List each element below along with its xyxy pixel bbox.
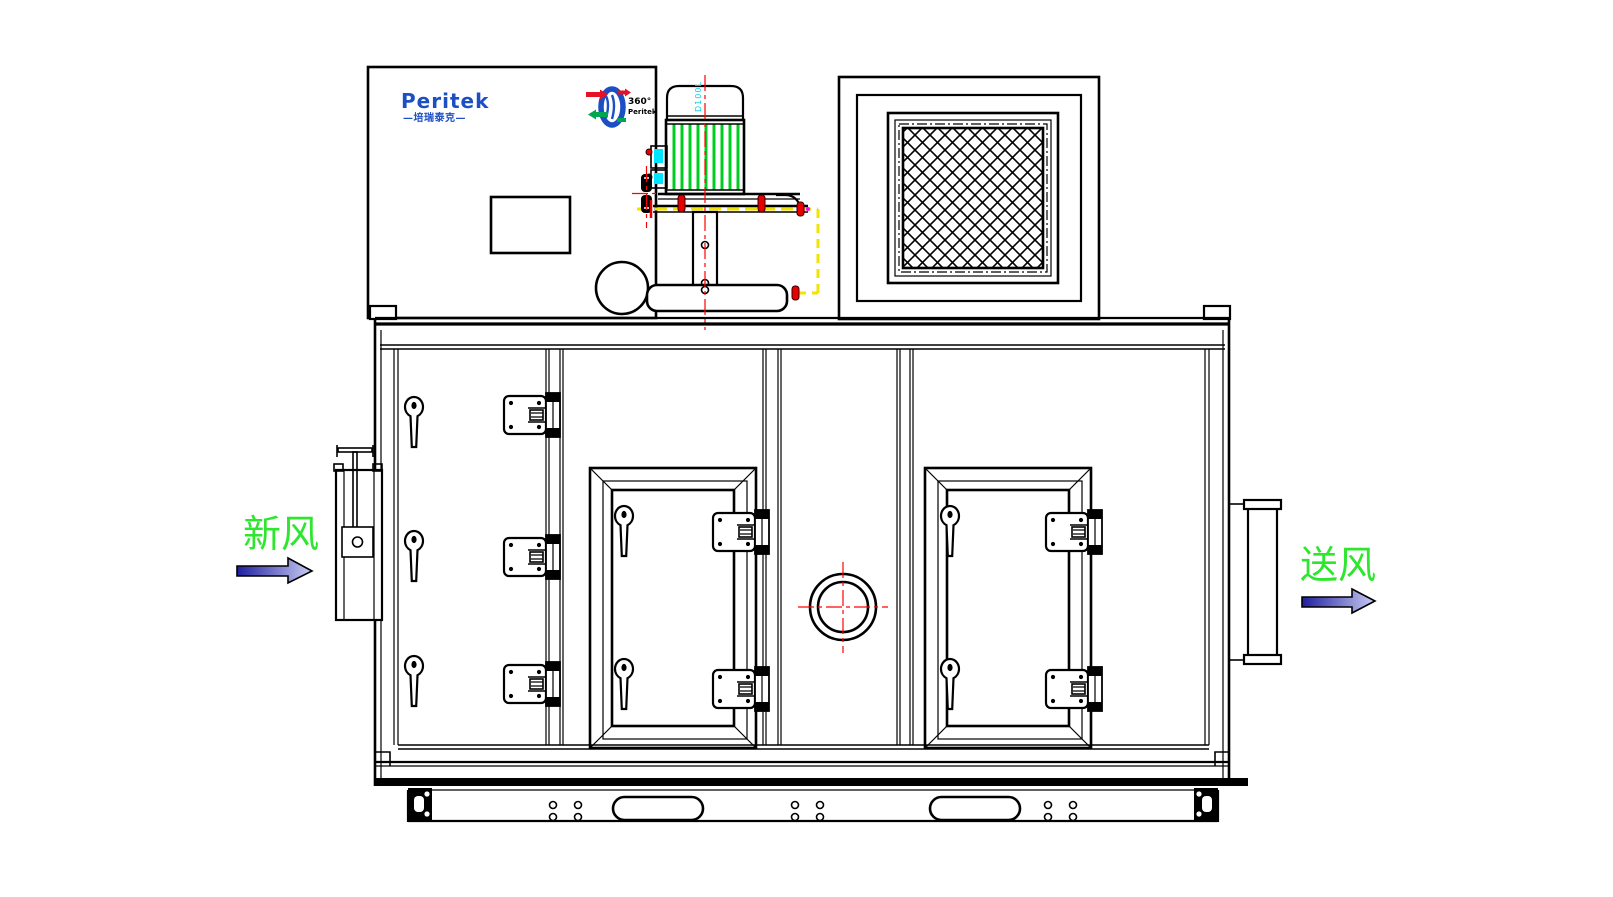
door-latch [504,662,560,706]
mount-bolt-icon [678,195,685,212]
brand-logo: Peritek —培瑞泰克— [401,89,489,124]
main-cabinet [370,306,1230,786]
filter-mesh [903,128,1043,268]
filter-grille-housing [839,77,1099,319]
unit-drawing: Peritek —培瑞泰克— 360° Peritek [0,0,1613,897]
pipe-port-circle [596,262,648,314]
datum-lines-yellow [637,209,818,293]
datum-bolt-icon [797,202,804,216]
supply-air-annotation: 送风 [1300,543,1376,613]
base-frame [375,778,1248,822]
left-panel-hardware [405,393,560,706]
door-handle [941,506,959,556]
inspection-porthole [798,562,888,653]
fresh-air-arrow-icon [237,558,312,583]
door-handle [405,656,423,706]
door-handle [615,506,633,556]
magenta-marker [806,207,810,211]
door-latch [713,667,769,711]
control-plate [491,197,570,253]
fresh-air-label: 新风 [243,512,319,556]
door-latch [1046,667,1102,711]
corner-step [375,752,390,766]
outlet-flange [1230,500,1281,664]
rotor-drive-motor-assembly: D100L [632,75,818,330]
brand-logo-subtext: —培瑞泰克— [403,111,466,124]
door-latch [713,510,769,554]
damper-actuator-box [342,527,373,557]
penthouse-left-panel: Peritek —培瑞泰克— 360° Peritek [368,67,657,318]
door-handle [941,659,959,709]
door-handle [615,659,633,709]
dehumidifier-front-elevation: Peritek —培瑞泰克— 360° Peritek [0,0,1613,897]
access-door-left [590,468,769,748]
brand-logo-text: Peritek [401,89,489,113]
rotor-logo: 360° Peritek [586,89,657,126]
mount-bolt-icon [758,195,765,212]
foot-bracket [1194,788,1218,821]
door-latch [504,393,560,437]
door-handle [405,531,423,581]
inlet-damper-flange [334,445,382,620]
datum-bolt-icon [792,286,799,300]
fresh-air-annotation: 新风 [237,512,319,583]
supply-air-label: 送风 [1300,543,1376,587]
motor-base-plate [647,285,787,311]
forklift-slot [930,797,1020,820]
supply-air-arrow-icon [1302,589,1375,613]
rotor-logo-degree-text: 360° [628,97,651,107]
door-latch [504,535,560,579]
forklift-slot [613,797,703,820]
door-handle [405,397,423,447]
access-door-right [925,468,1102,748]
door-latch [1046,510,1102,554]
foot-bracket [408,788,432,821]
motor-model-label: D100L [694,81,703,112]
rotor-logo-brand-text: Peritek [628,108,657,116]
